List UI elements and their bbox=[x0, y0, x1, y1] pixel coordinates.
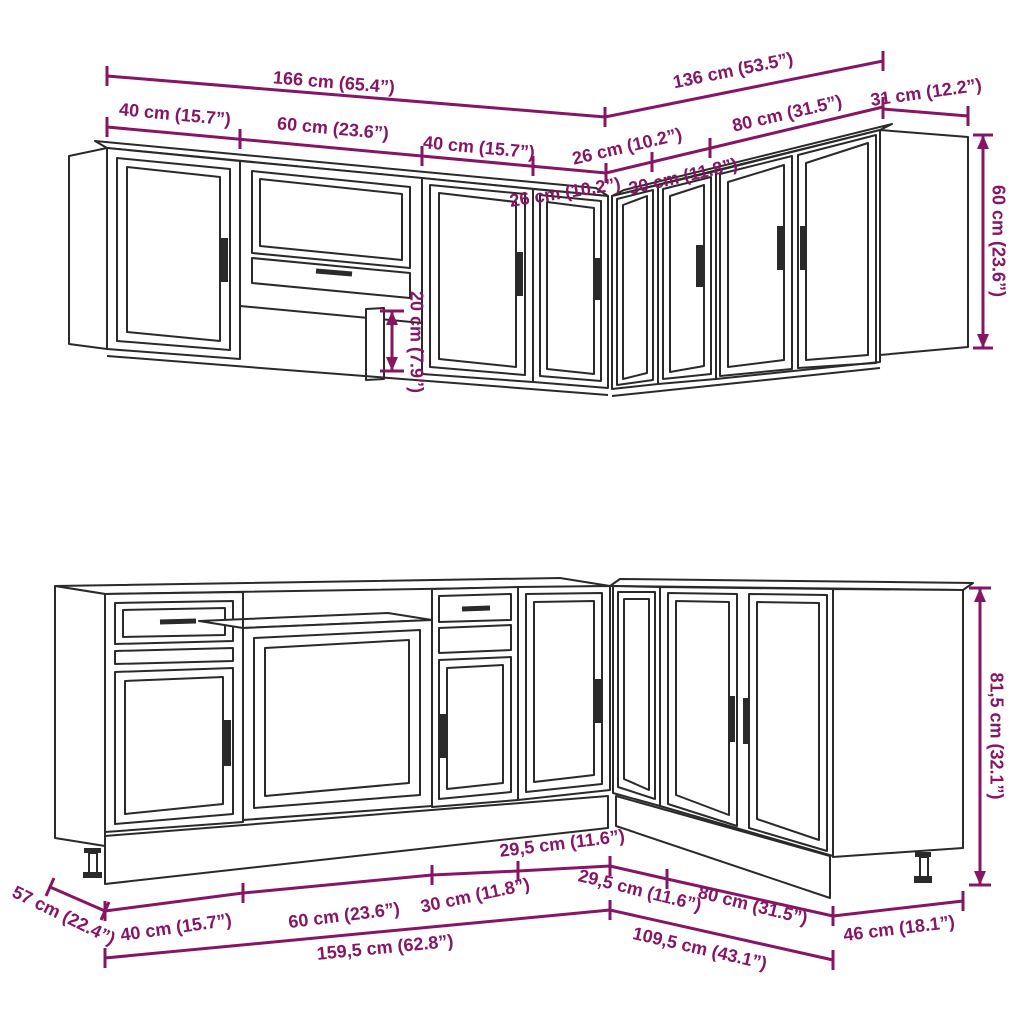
door-handle bbox=[743, 698, 750, 744]
dim-label-base-height: 81,5 cm (32.1”) bbox=[987, 672, 1007, 799]
upper-cabinet-run-left bbox=[69, 141, 608, 395]
adjustable-foot bbox=[83, 848, 102, 878]
drawer-handle bbox=[462, 608, 490, 609]
door-handle bbox=[221, 238, 228, 282]
dim-label-base-left-60: 60 cm (23.6”) bbox=[287, 899, 401, 933]
dim-label-upper-end-depth: 31 cm (12.2”) bbox=[869, 75, 983, 110]
drawer-handle bbox=[160, 621, 196, 622]
door-handle bbox=[696, 245, 703, 287]
door-handle bbox=[224, 720, 231, 766]
dim-label-underpass: 20 cm (7.9”) bbox=[407, 291, 427, 393]
dim-label-base-end-depth: 46 cm (18.1”) bbox=[842, 912, 956, 946]
dim-label-upper-total-left: 166 cm (65.4”) bbox=[272, 67, 395, 97]
upper-cabinet-run-right bbox=[612, 124, 968, 396]
gap-side-strip bbox=[366, 308, 384, 380]
dim-label-upper-right-26: 26 cm (10.2”) bbox=[570, 124, 684, 169]
door-handle bbox=[728, 696, 735, 742]
diagram-canvas: 166 cm (65.4”) 136 cm (53.5”) 31 cm (12.… bbox=[0, 0, 1024, 1024]
adjustable-foot bbox=[914, 852, 932, 883]
base-left-side-panel bbox=[55, 586, 105, 846]
upper-cabinet-30 bbox=[658, 171, 716, 384]
door-handle bbox=[440, 714, 447, 758]
door-handle bbox=[594, 258, 601, 300]
dim-label-upper-total-right: 136 cm (53.5”) bbox=[671, 48, 795, 92]
door-handle bbox=[516, 252, 523, 296]
door-handle bbox=[800, 226, 807, 270]
door-handle bbox=[777, 226, 784, 270]
cabinet-dimension-diagram: 166 cm (65.4”) 136 cm (53.5”) 31 cm (12.… bbox=[0, 0, 1024, 1024]
dim-label-upper-height: 60 cm (23.6”) bbox=[989, 185, 1009, 297]
upper-corner-return bbox=[612, 185, 658, 389]
flip-handle bbox=[316, 271, 352, 274]
upper-left-side-panel bbox=[69, 148, 107, 349]
dim-label-upper-left-60: 60 cm (23.6”) bbox=[276, 113, 389, 143]
dim-label-base-left-30: 30 cm (11.8”) bbox=[419, 874, 532, 917]
dim-label-base-left-40: 40 cm (15.7”) bbox=[119, 910, 233, 945]
base-end-panel bbox=[833, 589, 963, 857]
dim-line-upper-end-depth bbox=[883, 109, 968, 116]
dim-label-base-right-80: 80 cm (31.5”) bbox=[696, 882, 810, 929]
door-handle bbox=[594, 679, 601, 723]
base-cabinet-run-right bbox=[610, 579, 973, 898]
base-corner-return bbox=[613, 586, 660, 806]
dim-label-upper-left-40a: 40 cm (15.7”) bbox=[118, 99, 231, 129]
upper-end-panel bbox=[880, 130, 968, 355]
